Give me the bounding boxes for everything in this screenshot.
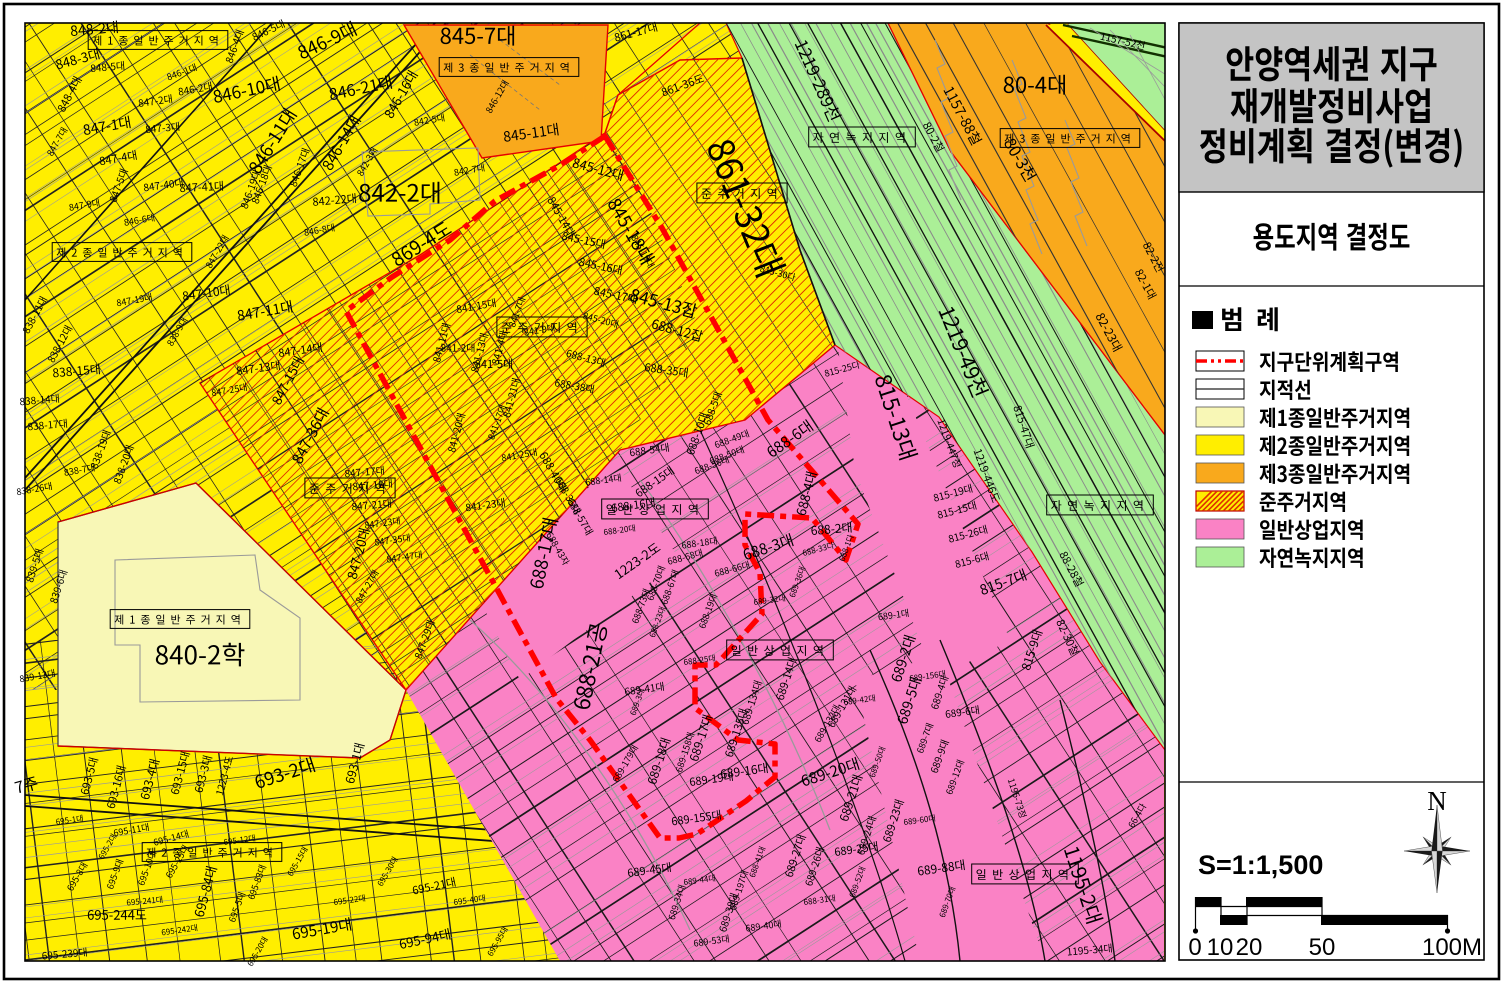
svg-text:100M: 100M <box>1422 934 1482 961</box>
svg-text:S=1:1,500: S=1:1,500 <box>1198 850 1323 880</box>
svg-text:10: 10 <box>1207 934 1234 961</box>
svg-text:50: 50 <box>1309 934 1336 961</box>
svg-text:20: 20 <box>1236 934 1263 961</box>
svg-text:0: 0 <box>1188 934 1201 961</box>
